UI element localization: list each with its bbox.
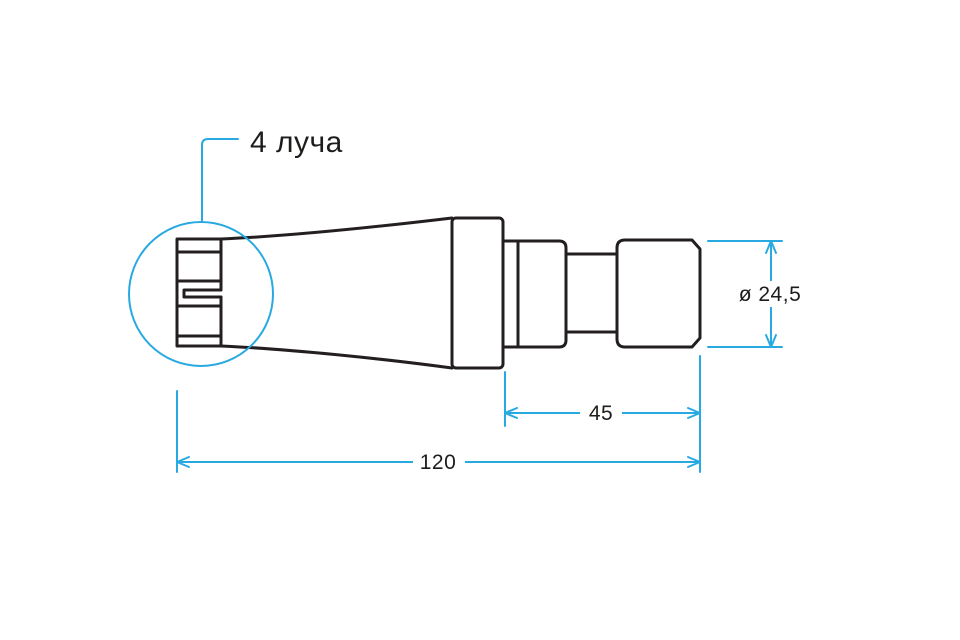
body-bell-cylinder bbox=[452, 218, 503, 368]
drawing-canvas: ø 24,5 45 120 4 луча bbox=[0, 0, 960, 640]
callout-label: 4 луча bbox=[250, 126, 343, 159]
front-length-dim-label: 45 bbox=[589, 402, 613, 425]
overall-length-dim-label: 120 bbox=[420, 451, 457, 474]
end-cap bbox=[617, 240, 700, 347]
tip-slot bbox=[184, 290, 221, 297]
drawing-page: ø 24,5 45 120 4 луча bbox=[0, 0, 960, 640]
body-horn-top-curve bbox=[221, 218, 452, 239]
callout-leader-line bbox=[202, 139, 238, 221]
collar bbox=[503, 241, 566, 347]
diameter-dim-label: ø 24,5 bbox=[739, 283, 802, 306]
part-outline-group bbox=[177, 218, 700, 368]
body-horn-bottom-curve bbox=[221, 346, 452, 368]
detail-circle bbox=[129, 222, 273, 366]
